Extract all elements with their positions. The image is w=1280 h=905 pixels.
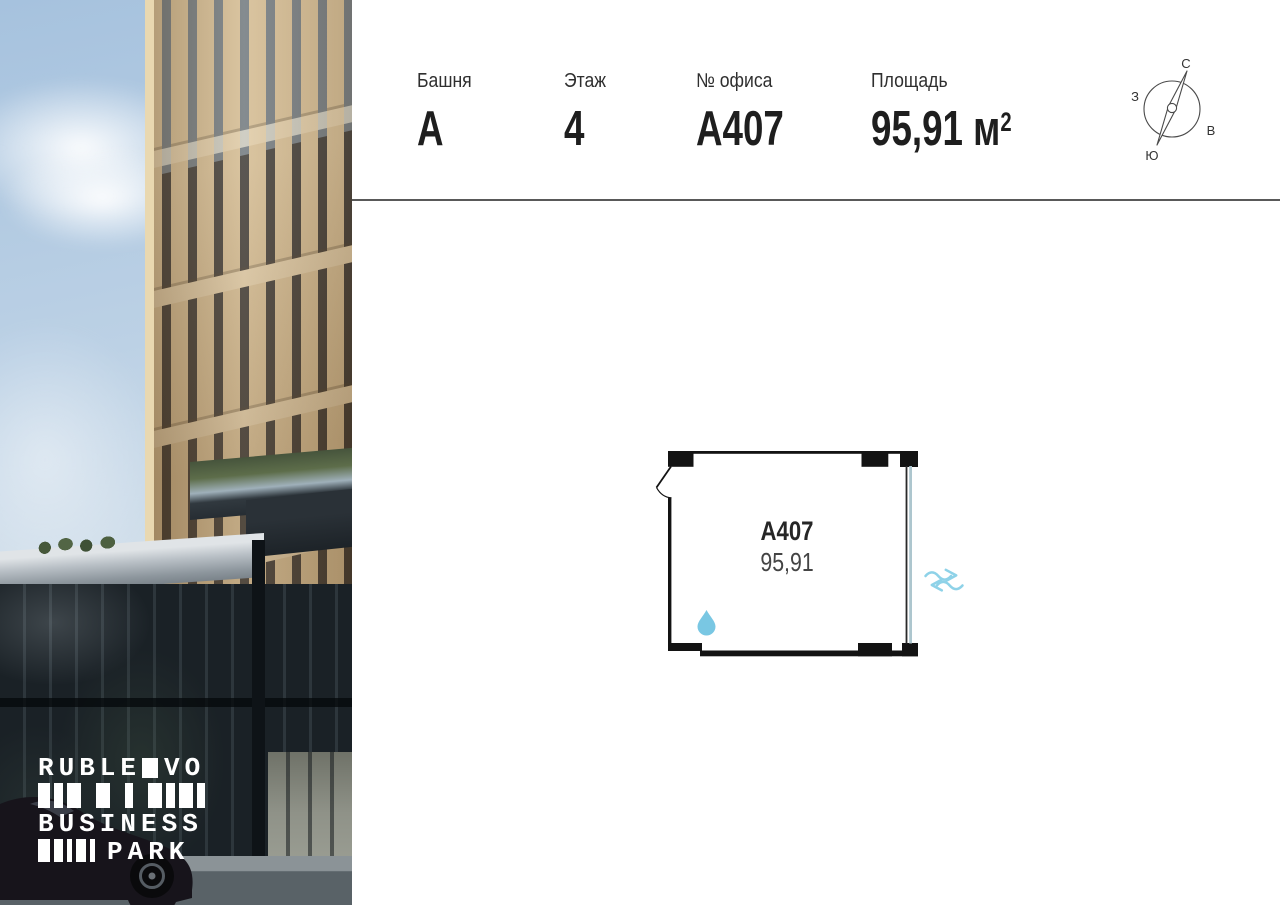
header-field-floor: Этаж 4 (564, 71, 612, 155)
compass-west-label: З (1131, 89, 1139, 104)
header-field-area: Площадь 95,91 м2 (871, 71, 1059, 155)
water-drop-icon (698, 610, 716, 636)
field-value: 95,91 м2 (871, 104, 1012, 155)
field-label: Башня (417, 71, 472, 91)
logo-square-block (142, 758, 158, 778)
header-divider-line (352, 199, 1280, 201)
logo-line-business: BUSINESS (38, 810, 205, 837)
field-value: A (417, 104, 464, 155)
corner-column (252, 540, 265, 905)
logo-line-park: PARK (38, 837, 205, 866)
door-opening (657, 467, 672, 498)
roof-plants (34, 529, 124, 559)
field-label: Площадь (871, 71, 1036, 91)
compass-east-label: В (1207, 123, 1216, 138)
logo-barcode-row (38, 783, 205, 808)
logo-word-business: BUSINESS (38, 811, 203, 837)
square-meter-sup: 2 (1000, 107, 1011, 137)
header-field-tower: Башня A (417, 71, 479, 155)
compass-south-label: Ю (1145, 148, 1158, 163)
field-value: 4 (564, 104, 600, 155)
field-label: Этаж (564, 71, 606, 91)
logo-line-1: RUBLE VO (38, 754, 205, 781)
logo-word-vo: VO (164, 755, 205, 781)
air-flow-icon (926, 570, 963, 591)
field-label: № офиса (696, 71, 799, 91)
window-glazing (906, 466, 912, 644)
unit-area-label: 95,91 (760, 548, 813, 578)
unit-number-label: A407 (761, 517, 814, 547)
floor-plan: A407 95,91 (640, 438, 980, 670)
header-field-office-number: № офиса A407 (696, 71, 813, 155)
field-value: A407 (696, 104, 784, 155)
logo-word-ruble: RUBLE (38, 755, 141, 781)
logo-barcode-row-2 (38, 839, 95, 864)
building-photo: RUBLE VO BUSINESS PARK (0, 0, 352, 905)
compass-north-label: С (1181, 56, 1190, 71)
rublevo-business-park-logo: RUBLE VO BUSINESS PARK (38, 754, 205, 866)
compass-icon: С З В Ю (1127, 50, 1223, 165)
listing-page: RUBLE VO BUSINESS PARK Башня A (0, 0, 1280, 905)
glass-transom (0, 698, 352, 707)
logo-word-park: PARK (107, 839, 189, 865)
